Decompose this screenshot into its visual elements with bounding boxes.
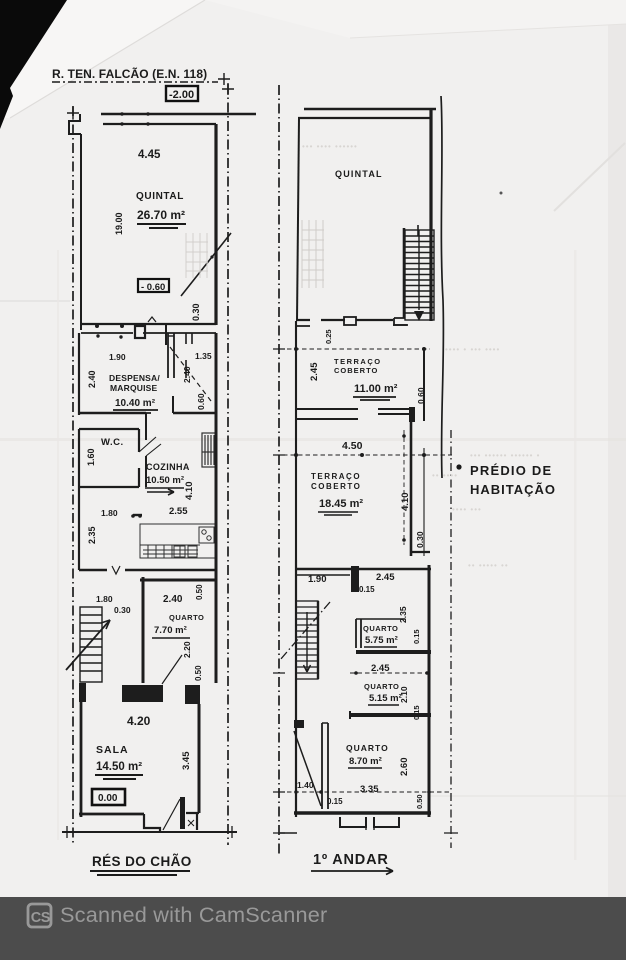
svg-text:COBERTO: COBERTO bbox=[311, 482, 361, 491]
svg-text:4.45: 4.45 bbox=[138, 149, 161, 161]
svg-text:0.15: 0.15 bbox=[412, 705, 421, 720]
svg-text:5.75 m²: 5.75 m² bbox=[365, 635, 398, 646]
svg-text:2.45: 2.45 bbox=[371, 663, 390, 674]
svg-text:2.35: 2.35 bbox=[398, 606, 408, 623]
svg-text:0.60: 0.60 bbox=[196, 393, 206, 410]
svg-text:•• ••••: •• •••• bbox=[432, 471, 458, 480]
svg-text:26.70 m²: 26.70 m² bbox=[137, 208, 185, 222]
svg-text:11.00 m²: 11.00 m² bbox=[354, 383, 398, 395]
svg-text:COZINHA: COZINHA bbox=[146, 462, 190, 472]
svg-text:PRÉDIO DE: PRÉDIO DE bbox=[470, 463, 552, 478]
svg-text:1.40: 1.40 bbox=[297, 780, 314, 790]
svg-text:0.15: 0.15 bbox=[359, 585, 375, 594]
svg-text:0.15: 0.15 bbox=[327, 797, 343, 806]
svg-text:DESPENSA/: DESPENSA/ bbox=[109, 373, 160, 383]
svg-text:0.30: 0.30 bbox=[114, 605, 131, 615]
svg-text:10.40 m²: 10.40 m² bbox=[115, 398, 156, 409]
svg-text:••• •••••• •••••• •: ••• •••••• •••••• • bbox=[470, 451, 540, 460]
svg-text:RÉS DO CHÃO: RÉS DO CHÃO bbox=[92, 854, 192, 869]
svg-text:2.35: 2.35 bbox=[87, 526, 97, 544]
svg-text:R. TEN. FALCÃO (E.N. 118): R. TEN. FALCÃO (E.N. 118) bbox=[52, 66, 207, 81]
svg-text:W.C.: W.C. bbox=[101, 437, 124, 448]
svg-text:2.40: 2.40 bbox=[163, 594, 183, 605]
svg-text:0.50: 0.50 bbox=[195, 584, 204, 600]
svg-text:4.50: 4.50 bbox=[342, 440, 363, 452]
svg-text:-2.00: -2.00 bbox=[169, 89, 194, 101]
svg-text:8.70 m²: 8.70 m² bbox=[349, 756, 382, 767]
svg-text:HABITAÇÃO: HABITAÇÃO bbox=[470, 482, 556, 497]
svg-text:1.90: 1.90 bbox=[109, 352, 126, 362]
svg-text:4.20: 4.20 bbox=[127, 714, 151, 728]
svg-text:1.35: 1.35 bbox=[195, 351, 212, 361]
svg-text:7.70 m²: 7.70 m² bbox=[154, 625, 187, 636]
svg-text:COBERTO: COBERTO bbox=[334, 366, 378, 375]
svg-text:5.15 m²: 5.15 m² bbox=[369, 693, 402, 704]
svg-text:- 0.60: - 0.60 bbox=[141, 282, 165, 293]
svg-text:0.00: 0.00 bbox=[98, 793, 118, 804]
svg-text:0.15: 0.15 bbox=[412, 629, 421, 644]
svg-text:•••• •••: •••• ••• bbox=[452, 505, 482, 514]
svg-text:10.50 m²: 10.50 m² bbox=[146, 475, 184, 486]
svg-text:QUINTAL: QUINTAL bbox=[136, 191, 184, 202]
svg-text:CS: CS bbox=[31, 910, 51, 926]
svg-text:0.60: 0.60 bbox=[416, 387, 426, 404]
svg-text:2.20: 2.20 bbox=[182, 641, 192, 658]
svg-text:2.60: 2.60 bbox=[399, 758, 410, 777]
svg-text:Scanned with CamScanner: Scanned with CamScanner bbox=[60, 902, 327, 927]
svg-text:1.80: 1.80 bbox=[101, 508, 118, 518]
svg-text:QUARTO: QUARTO bbox=[346, 743, 389, 753]
svg-text:18.45 m²: 18.45 m² bbox=[319, 498, 363, 510]
svg-text:14.50 m²: 14.50 m² bbox=[96, 761, 142, 773]
svg-text:2.45: 2.45 bbox=[376, 572, 395, 583]
svg-text:TERRAÇO: TERRAÇO bbox=[311, 472, 361, 481]
svg-text:••• •••• ••••••: ••• •••• •••••• bbox=[302, 142, 358, 151]
svg-text:0.25: 0.25 bbox=[324, 329, 333, 344]
svg-text:0.30: 0.30 bbox=[415, 531, 425, 548]
svg-text:QUINTAL: QUINTAL bbox=[335, 169, 383, 179]
svg-text:SALA: SALA bbox=[96, 744, 129, 756]
svg-text:2.55: 2.55 bbox=[169, 506, 188, 517]
svg-text:MARQUISE: MARQUISE bbox=[110, 383, 158, 393]
svg-text:0.50: 0.50 bbox=[415, 794, 424, 809]
svg-text:2.40: 2.40 bbox=[87, 370, 97, 388]
svg-text:4.10: 4.10 bbox=[400, 493, 411, 512]
svg-text:0.50: 0.50 bbox=[194, 665, 203, 681]
svg-text:1.60: 1.60 bbox=[86, 448, 96, 466]
svg-text:4.10: 4.10 bbox=[184, 482, 195, 501]
svg-text:QUARTO: QUARTO bbox=[363, 624, 398, 633]
svg-text:•• ••••• ••: •• ••••• •• bbox=[468, 561, 509, 570]
svg-text:19.00: 19.00 bbox=[114, 212, 124, 235]
svg-text:3.45: 3.45 bbox=[181, 751, 192, 770]
svg-text:TERRAÇO: TERRAÇO bbox=[334, 357, 382, 366]
svg-text:QUARTO: QUARTO bbox=[169, 613, 204, 622]
svg-text:QUARTO: QUARTO bbox=[364, 682, 399, 691]
svg-text:1.80: 1.80 bbox=[96, 594, 113, 604]
svg-text:•••• • ••• ••••: •••• • ••• •••• bbox=[445, 345, 500, 354]
svg-text:0.30: 0.30 bbox=[191, 303, 201, 321]
svg-text:1.90: 1.90 bbox=[308, 574, 327, 585]
svg-text:1º ANDAR: 1º ANDAR bbox=[313, 852, 389, 868]
svg-text:2.45: 2.45 bbox=[309, 362, 320, 381]
svg-text:3.35: 3.35 bbox=[360, 784, 379, 795]
svg-text:2.10: 2.10 bbox=[399, 686, 409, 703]
svg-text:2.40: 2.40 bbox=[182, 366, 192, 383]
